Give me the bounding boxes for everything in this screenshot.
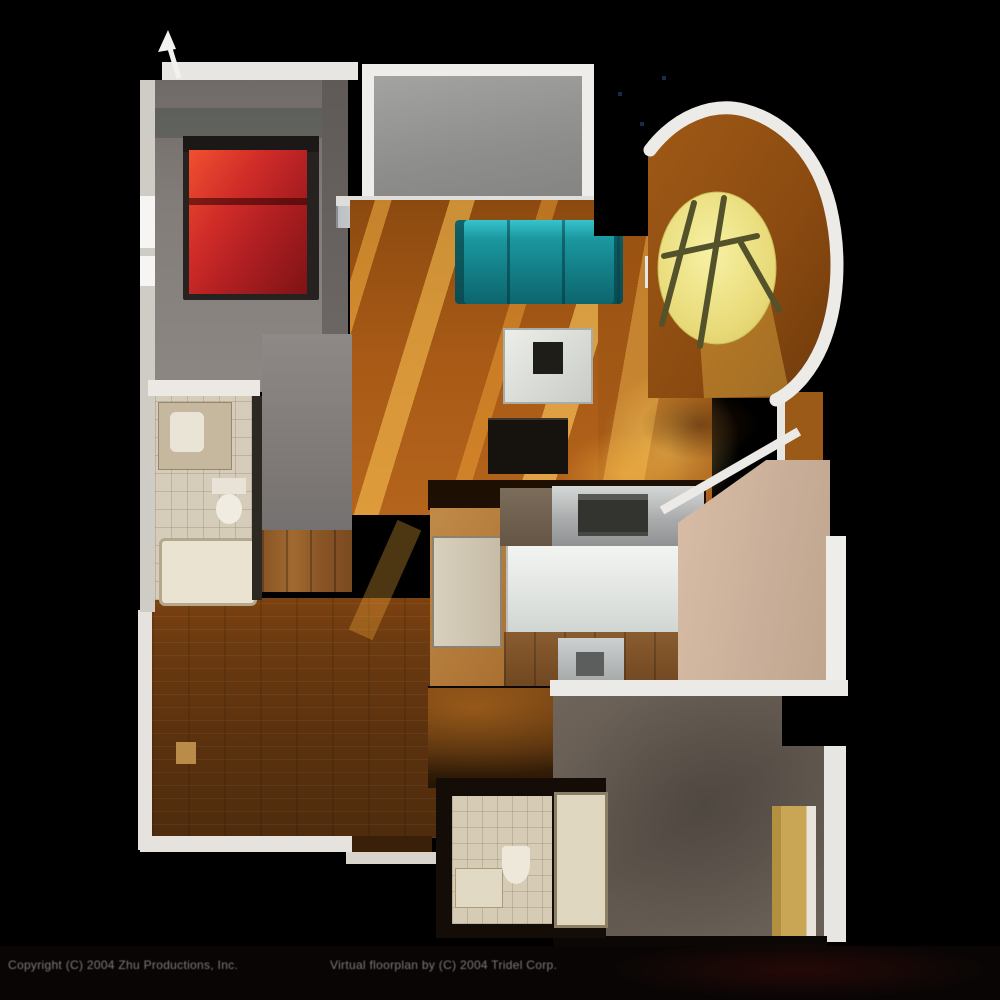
noise-speck [618,92,622,96]
noise-speck [662,76,666,80]
bed-pillow-seam [189,198,307,205]
side-table [645,256,669,288]
bedroom-window [140,196,155,248]
black-gap [594,40,652,236]
bathroom2-toilet [502,846,530,884]
bedroom-top-wall [162,62,358,80]
refrigerator [432,536,502,648]
den-step-wall [346,852,442,864]
floorplan-render: Copyright (C) 2004 Zhu Productions, Inc.… [0,0,1000,1000]
hallway-closet [262,334,352,532]
floor-mat [176,742,196,764]
bedroom-shadow [155,108,347,138]
floorplan-credit: Virtual floorplan by (C) 2004 Tridel Cor… [330,958,557,972]
toilet-bowl [216,494,242,524]
table-shadow [640,390,760,460]
tv-console [488,418,568,474]
kitchen-island [506,546,682,634]
den-bottom-wall [140,836,360,852]
toilet-tank [212,478,246,494]
vanity-sink [170,412,204,452]
bathroom2-vanity [455,868,503,908]
bathtub [159,538,257,606]
shower-tub [554,792,608,928]
bedroom-window-2 [140,256,155,286]
sink-basin [576,652,604,676]
bedroom2-right-wall [824,746,846,942]
bedroom2-top-wall [550,680,848,696]
copyright-credit: Copyright (C) 2004 Zhu Productions, Inc. [8,958,238,972]
wood-cabinet [262,530,352,592]
kitchen-cabinet [500,488,552,546]
coffee-table-center [533,342,563,374]
tan-door-right [772,806,816,936]
noise-speck [640,122,644,126]
hall-right-wall [826,536,846,698]
den-left-wall [138,610,152,850]
bedroom2-black-notch [782,696,848,746]
bathroom1-right-wall [252,396,262,600]
footer-glow [600,940,1000,1000]
balcony-floor [374,76,582,198]
left-exterior-wall [140,80,155,612]
bathroom1-top-wall [148,380,260,396]
double-bed [189,150,307,294]
range-cooktop [578,494,648,536]
